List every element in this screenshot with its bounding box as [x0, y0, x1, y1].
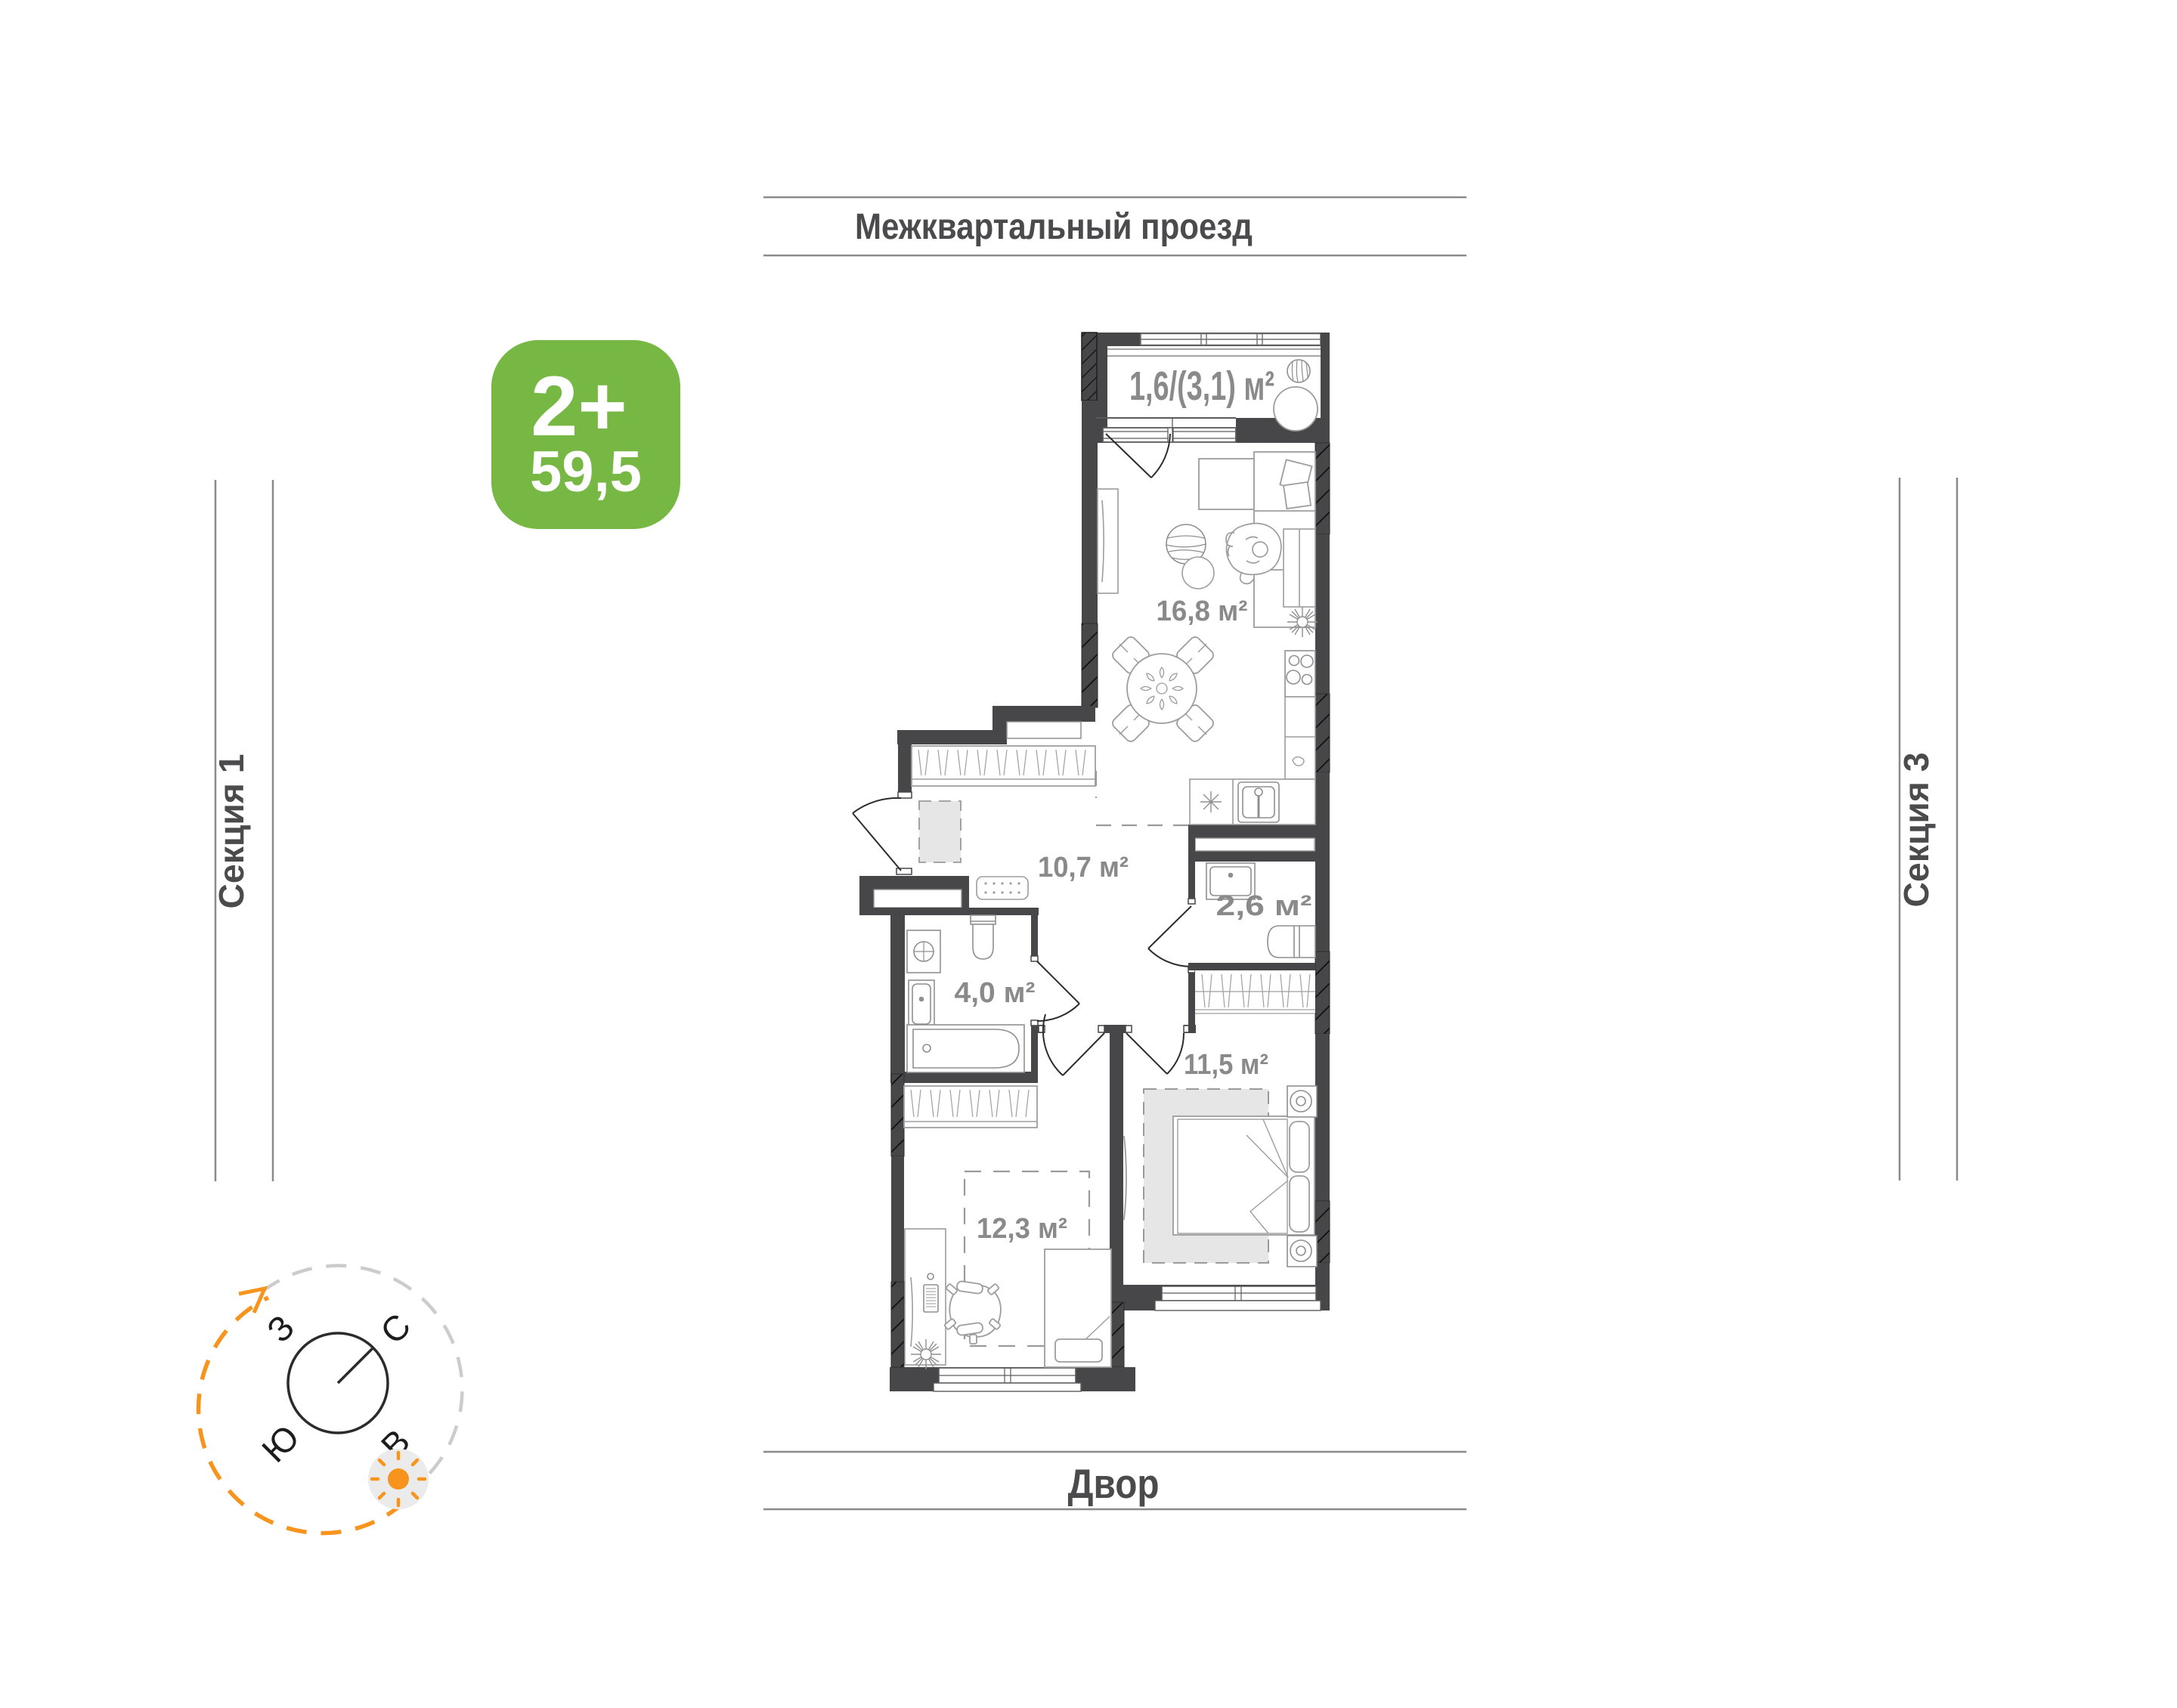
svg-text:59,5: 59,5	[530, 440, 642, 504]
svg-text:11,5 м²: 11,5 м²	[1184, 1049, 1268, 1081]
svg-text:12,3 м²: 12,3 м²	[977, 1213, 1067, 1245]
svg-text:16,8 м²: 16,8 м²	[1157, 596, 1248, 627]
svg-text:1,6/(3,1) м²: 1,6/(3,1) м²	[1129, 364, 1274, 409]
svg-text:Секция 1: Секция 1	[212, 754, 251, 909]
svg-text:З: З	[259, 1307, 302, 1350]
svg-text:С: С	[373, 1306, 418, 1351]
svg-text:Межквартальный проезд: Межквартальный проезд	[855, 207, 1253, 247]
svg-text:Двор: Двор	[1068, 1460, 1160, 1507]
svg-text:Секция 3: Секция 3	[1897, 753, 1936, 908]
svg-text:Ю: Ю	[254, 1417, 307, 1470]
svg-text:2,6 м²: 2,6 м²	[1216, 890, 1312, 922]
svg-text:10,7 м²: 10,7 м²	[1038, 852, 1129, 883]
svg-text:4,0 м²: 4,0 м²	[955, 977, 1036, 1009]
